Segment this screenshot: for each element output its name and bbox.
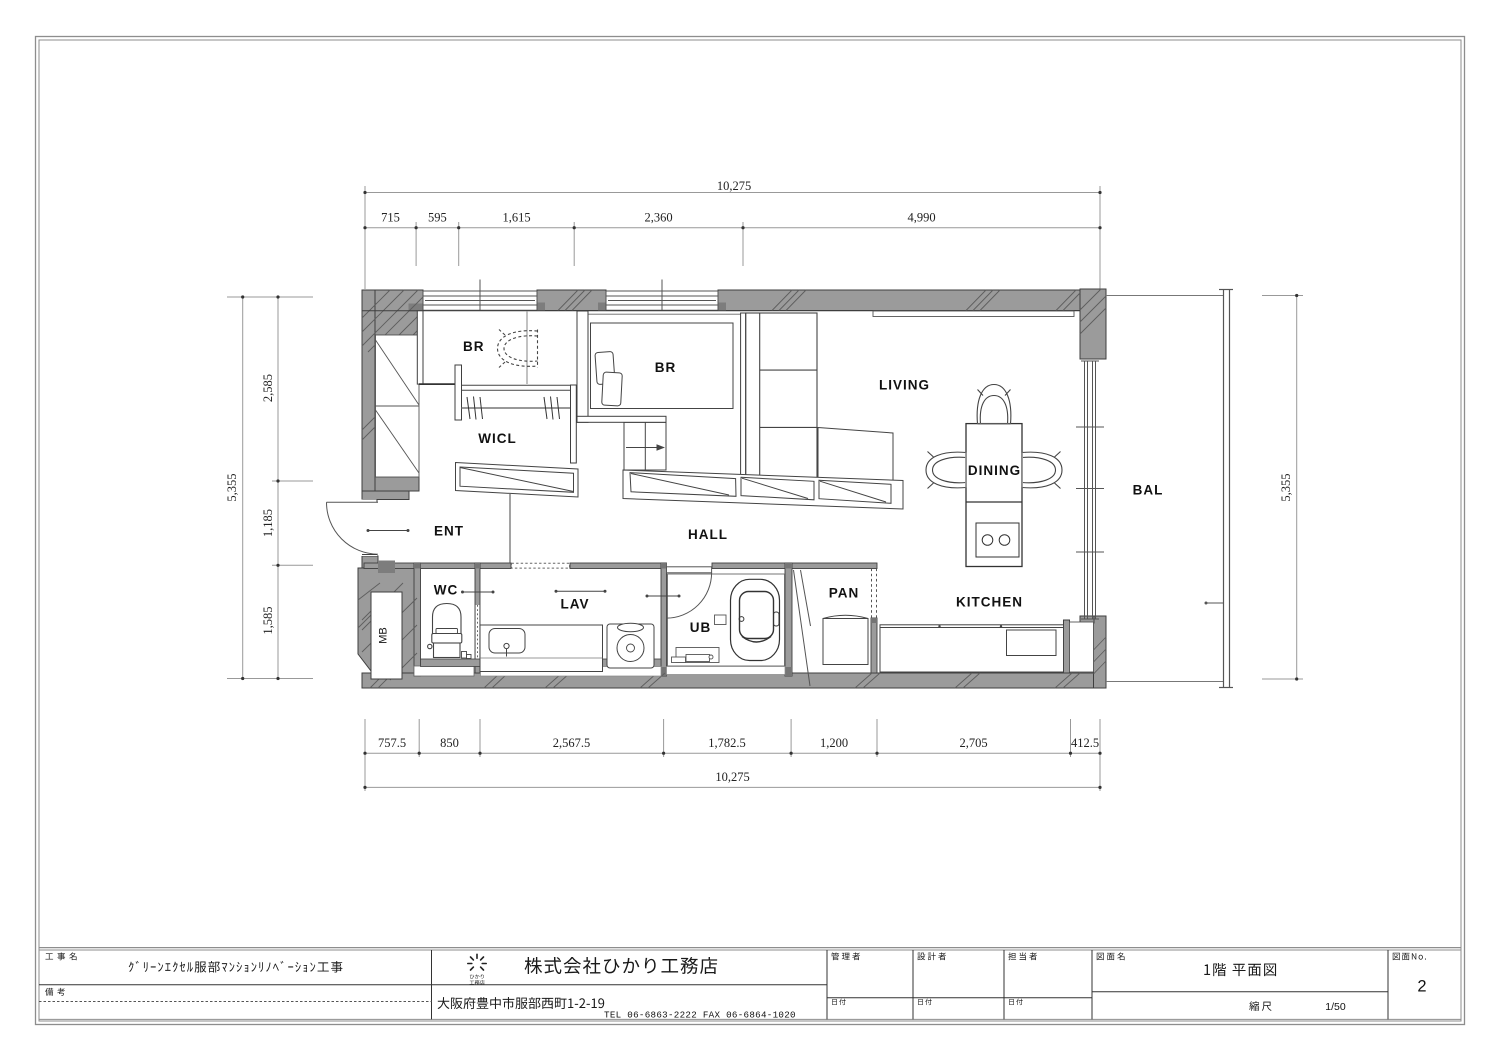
svg-text:1/50: 1/50 <box>1325 1001 1346 1013</box>
svg-text:1,185: 1,185 <box>261 509 275 537</box>
svg-text:DINING: DINING <box>968 463 1021 478</box>
svg-text:4,990: 4,990 <box>907 211 935 225</box>
svg-text:850: 850 <box>440 736 459 750</box>
svg-text:PAN: PAN <box>829 586 860 601</box>
svg-text:1,782.5: 1,782.5 <box>708 736 746 750</box>
svg-text:2,360: 2,360 <box>645 211 673 225</box>
svg-text:WICL: WICL <box>478 431 517 446</box>
svg-text:HALL: HALL <box>688 527 728 542</box>
svg-text:ENT: ENT <box>434 524 464 539</box>
svg-text:1,585: 1,585 <box>261 606 275 634</box>
svg-text:MB: MB <box>378 627 390 644</box>
svg-text:BR: BR <box>463 339 485 354</box>
svg-text:2: 2 <box>1417 978 1426 996</box>
svg-text:757.5: 757.5 <box>378 736 406 750</box>
svg-text:1,200: 1,200 <box>820 736 848 750</box>
svg-text:TEL 06-6863-2222 FAX 06-6864: TEL 06-6863-2222 FAX 06-6864-1020 <box>604 1010 796 1021</box>
svg-text:2,567.5: 2,567.5 <box>553 736 591 750</box>
svg-text:5,355: 5,355 <box>1279 473 1293 501</box>
svg-text:LIVING: LIVING <box>879 378 930 393</box>
svg-text:KITCHEN: KITCHEN <box>956 595 1023 610</box>
svg-text:412.5: 412.5 <box>1071 736 1099 750</box>
svg-text:UB: UB <box>690 620 712 635</box>
svg-text:595: 595 <box>428 211 447 225</box>
svg-text:LAV: LAV <box>561 597 590 612</box>
svg-text:WC: WC <box>434 583 459 598</box>
svg-text:1,615: 1,615 <box>502 211 530 225</box>
svg-text:10,275: 10,275 <box>717 179 751 193</box>
svg-text:715: 715 <box>381 211 400 225</box>
svg-text:2,585: 2,585 <box>261 374 275 402</box>
svg-text:5,355: 5,355 <box>225 473 239 501</box>
svg-text:BR: BR <box>655 360 677 375</box>
svg-text:BAL: BAL <box>1133 483 1164 498</box>
svg-text:10,275: 10,275 <box>715 770 749 784</box>
svg-text:2,705: 2,705 <box>959 736 987 750</box>
